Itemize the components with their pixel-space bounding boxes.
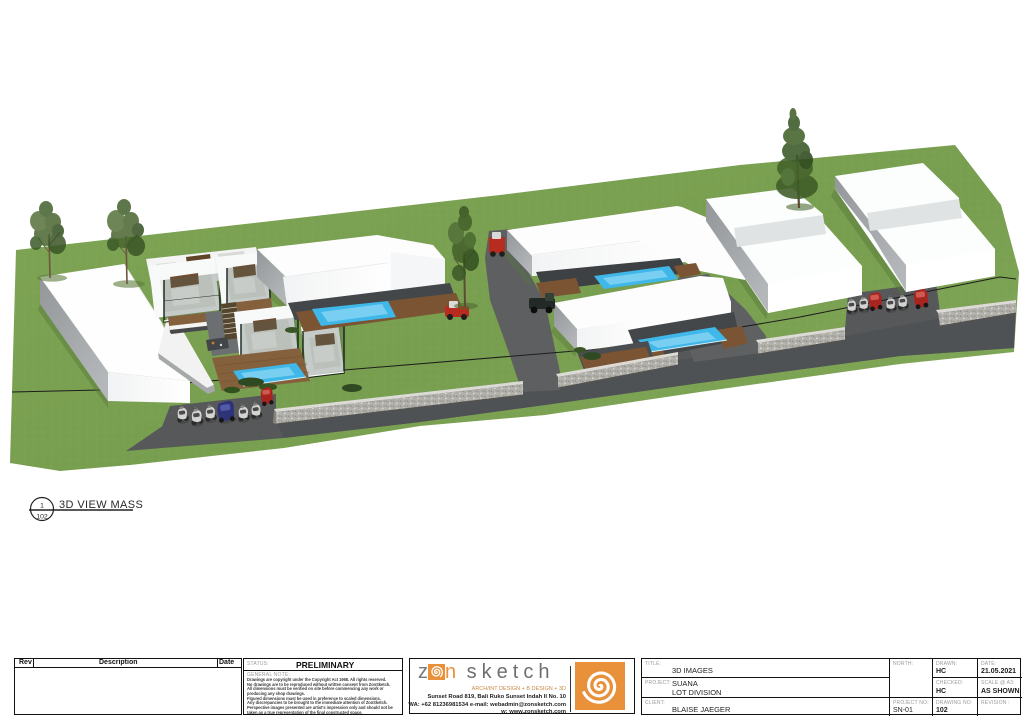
svg-text:102: 102 [36, 514, 48, 521]
svg-text:1: 1 [40, 503, 44, 510]
svg-text:3D VIEW MASS: 3D VIEW MASS [59, 499, 143, 511]
